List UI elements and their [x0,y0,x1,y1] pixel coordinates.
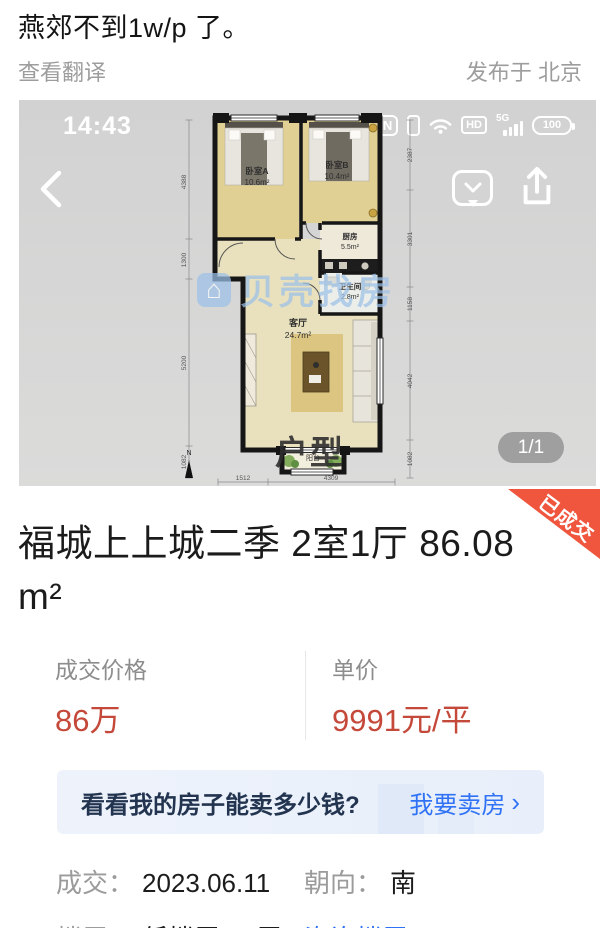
room-label: 客厅 [288,317,307,328]
svg-text:N: N [186,450,191,457]
room-area: 2.8m² [341,294,360,301]
price-section: 成交价格 86万 单价 9991元/平 [0,651,600,740]
detail-list: 成交： 2023.06.11 朝向： 南 楼层： 低楼层/23层 咨询楼层 楼型… [0,868,600,928]
room-label: 卧室B [325,160,348,170]
status-time: 14:43 [63,112,132,141]
page-indicator: 1/1 [498,432,564,463]
sell-house-link[interactable]: 我要卖房 › [409,785,520,820]
detail-value: 低楼层/23层 [142,924,282,928]
listing-title: 福城上上城二季 2室1厅 86.08 m² [0,486,600,623]
svg-text:1082: 1082 [407,451,414,466]
wifi-icon [429,116,452,135]
svg-text:4042: 4042 [407,373,414,388]
detail-row: 楼层： 低楼层/23层 咨询楼层 [56,924,600,928]
svg-text:5200: 5200 [181,355,188,370]
svg-text:1158: 1158 [407,297,414,311]
detail-value: 南 [390,868,416,899]
room-area: 10.4m² [325,172,350,181]
sell-house-banner[interactable]: 看看我的房子能卖多少钱? 我要卖房 › [57,770,544,834]
battery-icon: 100 [532,116,572,135]
photo-viewer[interactable]: 14:43 N HD 5G 100 [19,100,596,486]
unit-price-value: 9991元/平 [332,695,472,740]
room-label: 卧室A [245,166,268,176]
consult-floor-link[interactable]: 咨询楼层 [304,924,408,928]
detail-label: 成交： [56,868,134,899]
svg-text:4309: 4309 [324,475,339,482]
deal-price-value: 86万 [55,695,305,740]
deal-price-label: 成交价格 [55,651,305,685]
detail-label: 朝向： [304,868,382,899]
svg-text:1512: 1512 [236,475,251,482]
translate-link[interactable]: 查看翻译 [18,55,106,87]
deal-price-block: 成交价格 86万 [55,651,305,740]
chevron-right-icon: › [511,789,520,815]
signal-5g-icon: 5G [496,115,523,136]
detail-row: 成交： 2023.06.11 朝向： 南 [56,868,600,899]
svg-text:2387: 2387 [407,147,414,162]
svg-text:1300: 1300 [181,252,188,267]
post-header: 燕郊不到1w/p 了。 查看翻译 发布于 北京 [0,0,600,87]
hd-icon: HD [461,116,487,134]
room-area: 24.7m² [285,330,312,340]
detail-label: 楼层： [56,924,134,928]
post-location: 发布于 北京 [466,55,582,87]
feedback-icon[interactable] [452,170,493,206]
room-area: 10.6m² [245,178,270,187]
room-label: 卫生间 [339,281,362,291]
back-icon[interactable] [37,168,65,210]
detail-value: 2023.06.11 [142,868,270,899]
svg-text:4388: 4388 [181,174,188,189]
listing-card: 已成交 福城上上城二季 2室1厅 86.08 m² 成交价格 86万 单价 99… [0,486,600,928]
banner-question: 看看我的房子能卖多少钱? [81,785,360,820]
unit-price-label: 单价 [332,651,472,685]
room-label: 厨房 [343,231,358,241]
post-title: 燕郊不到1w/p 了。 [18,6,582,45]
photo-category-label: 户型 [275,426,345,474]
svg-text:3301: 3301 [407,231,414,246]
room-area: 5.5m² [341,244,360,251]
share-icon[interactable] [517,164,557,208]
unit-price-block: 单价 9991元/平 [305,651,472,740]
